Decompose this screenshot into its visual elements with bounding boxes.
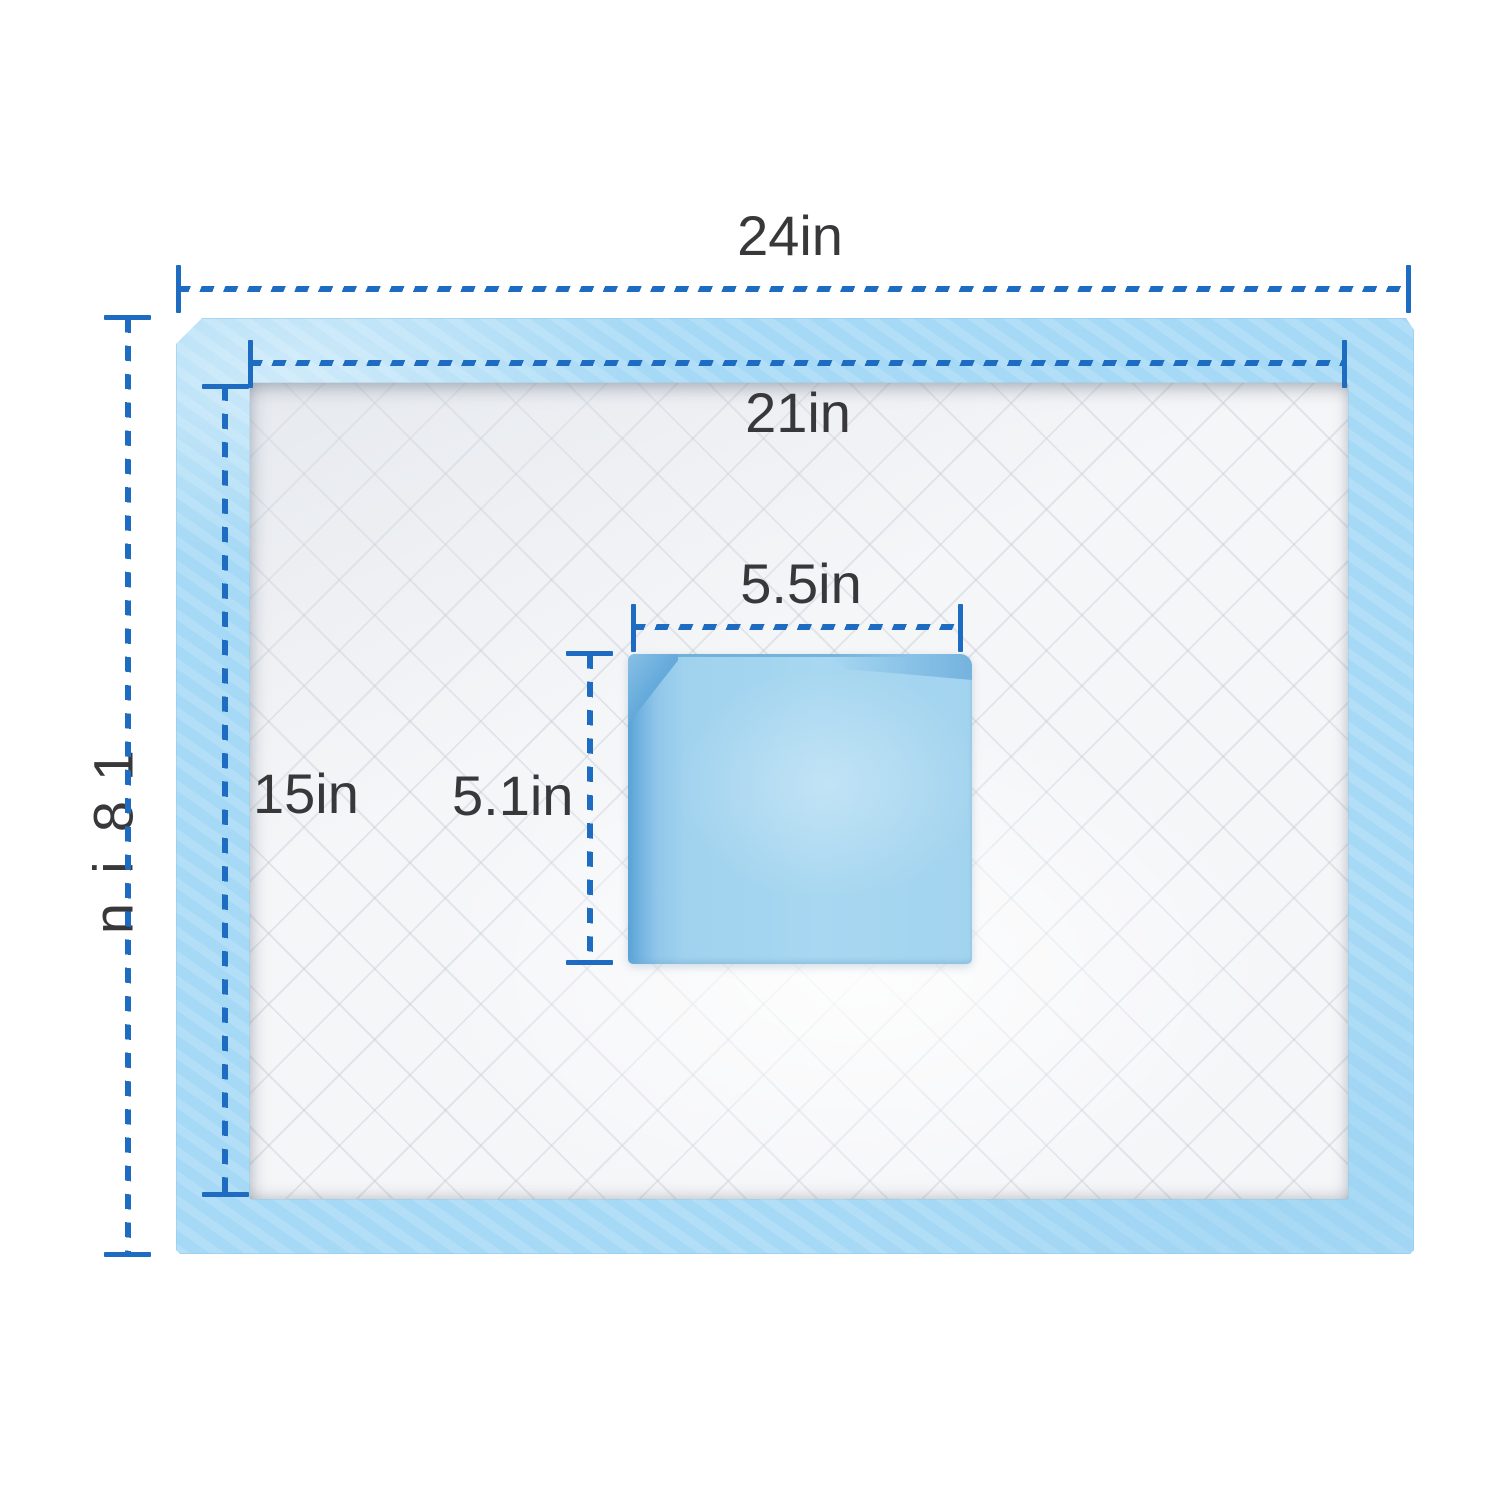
dim-folded-width-line xyxy=(633,624,962,630)
dim-folded-width-tick-left xyxy=(631,604,636,652)
dim-outer-width-tick-left xyxy=(176,265,181,313)
folded-pad xyxy=(628,654,972,964)
dim-core-width-label: 21in xyxy=(745,385,851,441)
dim-outer-height-line xyxy=(125,318,131,1254)
folded-pad-corner-fold-left xyxy=(628,654,678,724)
dim-core-width-tick-left xyxy=(248,340,253,388)
dim-core-height-line xyxy=(222,386,228,1196)
dim-folded-width-label: 5.5in xyxy=(740,556,861,612)
dim-outer-width-line xyxy=(178,286,1408,292)
dim-core-width-tick-right xyxy=(1342,340,1347,388)
dim-outer-width-tick-right xyxy=(1406,265,1411,313)
dim-folded-height-tick-bottom xyxy=(566,960,613,965)
dim-outer-width-label: 24in xyxy=(737,208,843,264)
diagram-canvas: 24in 18in 21in 15in 5.5in 5.1in xyxy=(0,0,1500,1500)
dim-core-height-tick-top xyxy=(202,384,249,389)
dim-folded-height-label: 5.1in xyxy=(452,768,573,824)
dim-core-width-line xyxy=(250,360,1345,366)
dim-folded-width-tick-right xyxy=(958,604,963,652)
dim-folded-height-line xyxy=(587,654,593,964)
dim-folded-height-tick-top xyxy=(566,651,613,656)
dim-outer-height-tick-top xyxy=(104,315,151,320)
dim-core-height-label: 15in xyxy=(253,766,359,822)
dim-outer-height-label: 18in xyxy=(82,740,144,944)
dim-outer-height-tick-bottom xyxy=(104,1252,151,1257)
dim-core-height-tick-bottom xyxy=(202,1192,249,1197)
folded-pad-corner-fold-right xyxy=(832,654,972,680)
